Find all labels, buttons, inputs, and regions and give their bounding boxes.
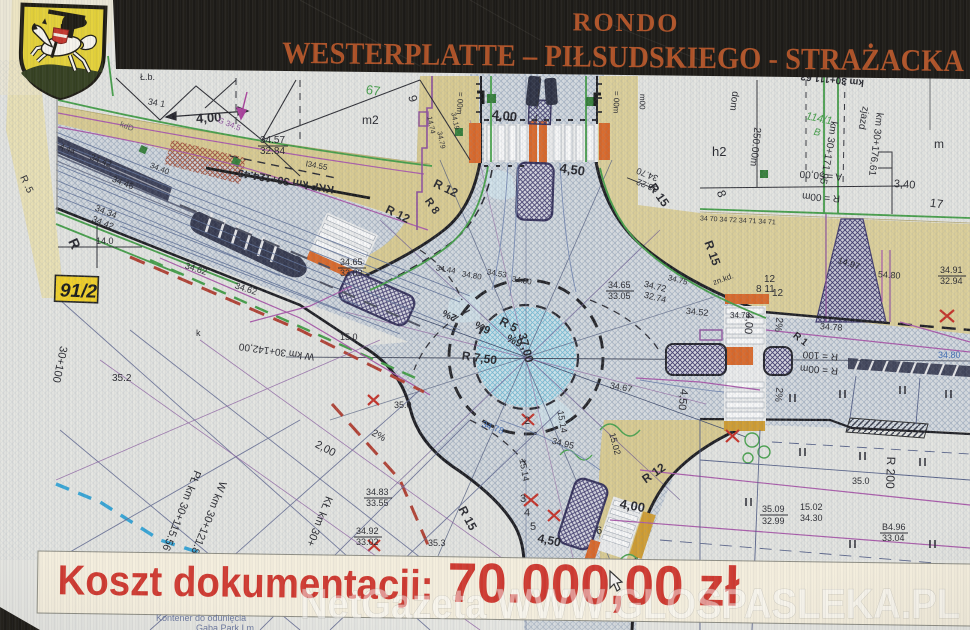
svg-text:Gaba Park I m: Gaba Park I m bbox=[196, 623, 254, 630]
svg-text:NetGazeta WWW.GLOSPASLEKA.PL: NetGazeta WWW.GLOSPASLEKA.PL bbox=[300, 580, 960, 627]
svg-text:RONDO: RONDO bbox=[572, 7, 679, 37]
svg-text:Kontener do odunięcia: Kontener do odunięcia bbox=[156, 613, 246, 623]
